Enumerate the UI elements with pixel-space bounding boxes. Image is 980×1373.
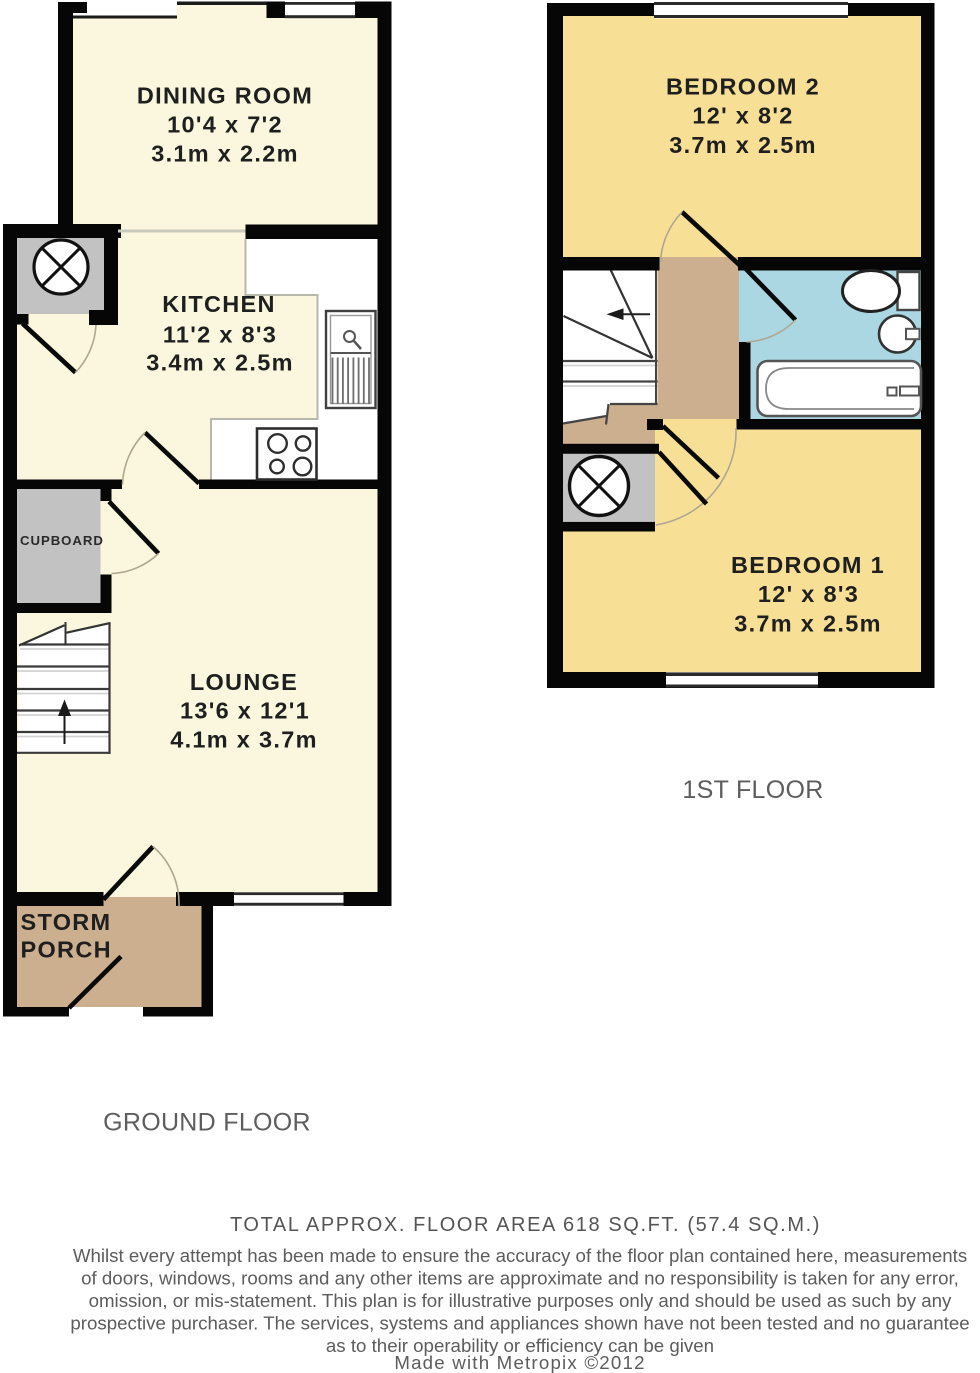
svg-text:TOTAL APPROX. FLOOR AREA 618 S: TOTAL APPROX. FLOOR AREA 618 SQ.FT. (57.… [230,1214,821,1236]
svg-text:12' x 8'3: 12' x 8'3 [758,581,859,607]
svg-text:Made with Metropix ©2012: Made with Metropix ©2012 [394,1352,645,1373]
svg-text:GROUND FLOOR: GROUND FLOOR [103,1109,311,1137]
svg-text:3.1m x 2.2m: 3.1m x 2.2m [151,141,299,167]
svg-text:10'4 x 7'2: 10'4 x 7'2 [167,112,283,138]
svg-text:12' x 8'2: 12' x 8'2 [692,103,793,129]
svg-text:Whilst every attempt has been: Whilst every attempt has been made to en… [73,1245,967,1266]
svg-text:DINING ROOM: DINING ROOM [137,83,313,109]
svg-text:1ST FLOOR: 1ST FLOOR [682,776,823,804]
svg-text:of doors, windows, rooms and a: of doors, windows, rooms and any other i… [81,1268,959,1289]
svg-text:3.7m x 2.5m: 3.7m x 2.5m [734,611,882,637]
svg-text:BEDROOM 1: BEDROOM 1 [731,552,885,578]
svg-text:3.7m x 2.5m: 3.7m x 2.5m [669,132,817,158]
svg-text:LOUNGE: LOUNGE [190,669,298,695]
svg-text:PORCH: PORCH [21,937,112,963]
svg-text:CUPBOARD: CUPBOARD [20,533,104,548]
svg-text:BEDROOM 2: BEDROOM 2 [666,74,820,100]
svg-text:4.1m x 3.7m: 4.1m x 3.7m [170,727,318,753]
svg-text:3.4m x 2.5m: 3.4m x 2.5m [146,350,294,376]
svg-text:KITCHEN: KITCHEN [162,291,276,317]
svg-text:STORM: STORM [21,909,112,935]
svg-text:prospective purchaser. The ser: prospective purchaser. The services, sys… [70,1313,969,1334]
svg-text:11'2 x 8'3: 11'2 x 8'3 [163,322,277,348]
svg-text:13'6 x 12'1: 13'6 x 12'1 [180,698,310,724]
svg-text:omission, or mis-statement. Th: omission, or mis-statement. This plan is… [89,1290,952,1311]
